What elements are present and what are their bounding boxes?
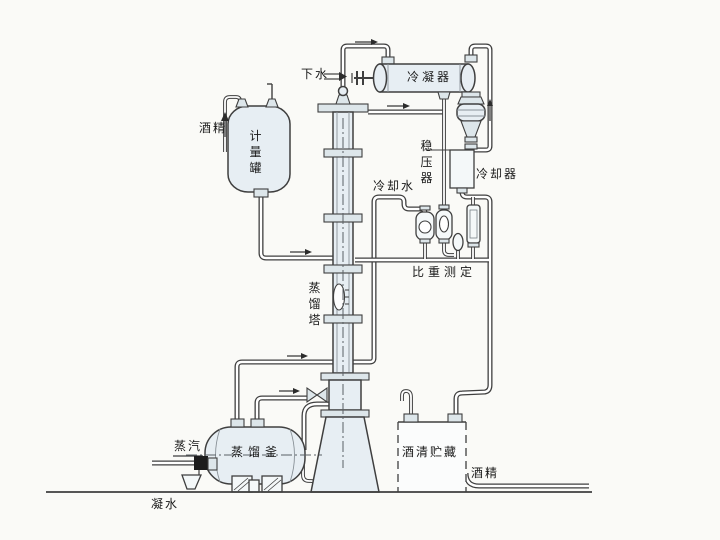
label-alcohol-storage: 酒清贮藏	[402, 446, 458, 459]
pipe-kettle-vapor-1	[237, 362, 333, 424]
process-flow-diagram: 下水 冷凝器 稳压器 冷却水 冷却器 比重测定 酒精 计量罐 蒸馏塔 蒸馏釜 蒸…	[0, 0, 720, 540]
hydrometer-tube	[467, 205, 480, 243]
label-gravity-measurement: 比重测定	[412, 266, 476, 279]
steam-flange	[208, 458, 217, 470]
tank-bottom-nozzle	[254, 189, 268, 197]
valve-bowtie	[307, 388, 317, 402]
pipe-vent-gooseneck	[402, 391, 411, 415]
pipe-kettle-vapor-2	[257, 398, 308, 424]
column-top-plate	[318, 104, 368, 112]
drain-trap-funnel	[182, 475, 201, 489]
column-top-cap	[336, 95, 350, 104]
flow-arrow	[301, 353, 308, 359]
label-distillation-column: 蒸馏塔	[307, 280, 322, 328]
flow-arrow	[293, 388, 300, 394]
flow-arrow	[305, 249, 312, 255]
column-skirt-flange	[321, 410, 369, 417]
storage-nozzle	[404, 414, 418, 422]
label-condenser: 冷凝器	[407, 71, 452, 84]
label-alcohol-out: 酒精	[471, 467, 499, 480]
pipe-cooling-water	[353, 197, 425, 362]
column-top-ball	[339, 87, 348, 96]
float-bulb	[453, 234, 463, 251]
pipe-network	[152, 46, 589, 492]
label-condensate-water: 凝水	[151, 498, 179, 511]
tank-nozzle	[266, 99, 278, 107]
cooler-bottom-stub	[457, 188, 467, 193]
column-base-flange	[321, 373, 369, 380]
kettle-support-block	[249, 480, 259, 492]
separator-bellows	[457, 92, 485, 149]
kettle-nozzle	[231, 419, 244, 427]
condenser-top-nozzle	[465, 55, 477, 62]
label-steam: 蒸汽	[174, 440, 202, 453]
steam-valve	[194, 456, 208, 470]
diagram-canvas	[0, 0, 720, 540]
pipe-feed-to-column	[261, 195, 333, 258]
pipe-cooling-water	[353, 197, 425, 362]
label-cooling-water: 冷却水	[373, 180, 415, 193]
label-alcohol-feed: 酒精	[199, 122, 227, 135]
label-distillation-kettle: 蒸馏釜	[231, 446, 282, 459]
label-drain-water: 下水	[301, 68, 329, 81]
flow-arrow	[403, 103, 410, 109]
kettle-nozzle	[251, 419, 264, 427]
pipe-kettle-vapor-2	[257, 398, 308, 424]
condenser-right-cap	[461, 64, 475, 92]
column-base-drum	[329, 380, 361, 410]
condenser-bottom-nozzle	[438, 92, 450, 99]
condenser-top-nozzle	[382, 57, 394, 64]
pipe-feed-to-column	[261, 195, 333, 258]
valve-bowtie	[317, 388, 327, 402]
flow-arrow-up	[221, 112, 229, 121]
storage-nozzle	[448, 414, 462, 422]
pipe-kettle-vapor-1	[237, 362, 333, 424]
label-cooler: 冷却器	[476, 168, 518, 181]
label-metering-tank: 计量罐	[248, 128, 263, 176]
label-pressure-stabilizer: 稳压器	[419, 138, 434, 186]
cooler-body	[450, 150, 474, 188]
tank-nozzle	[236, 99, 248, 107]
condenser-left-cap	[374, 64, 387, 92]
